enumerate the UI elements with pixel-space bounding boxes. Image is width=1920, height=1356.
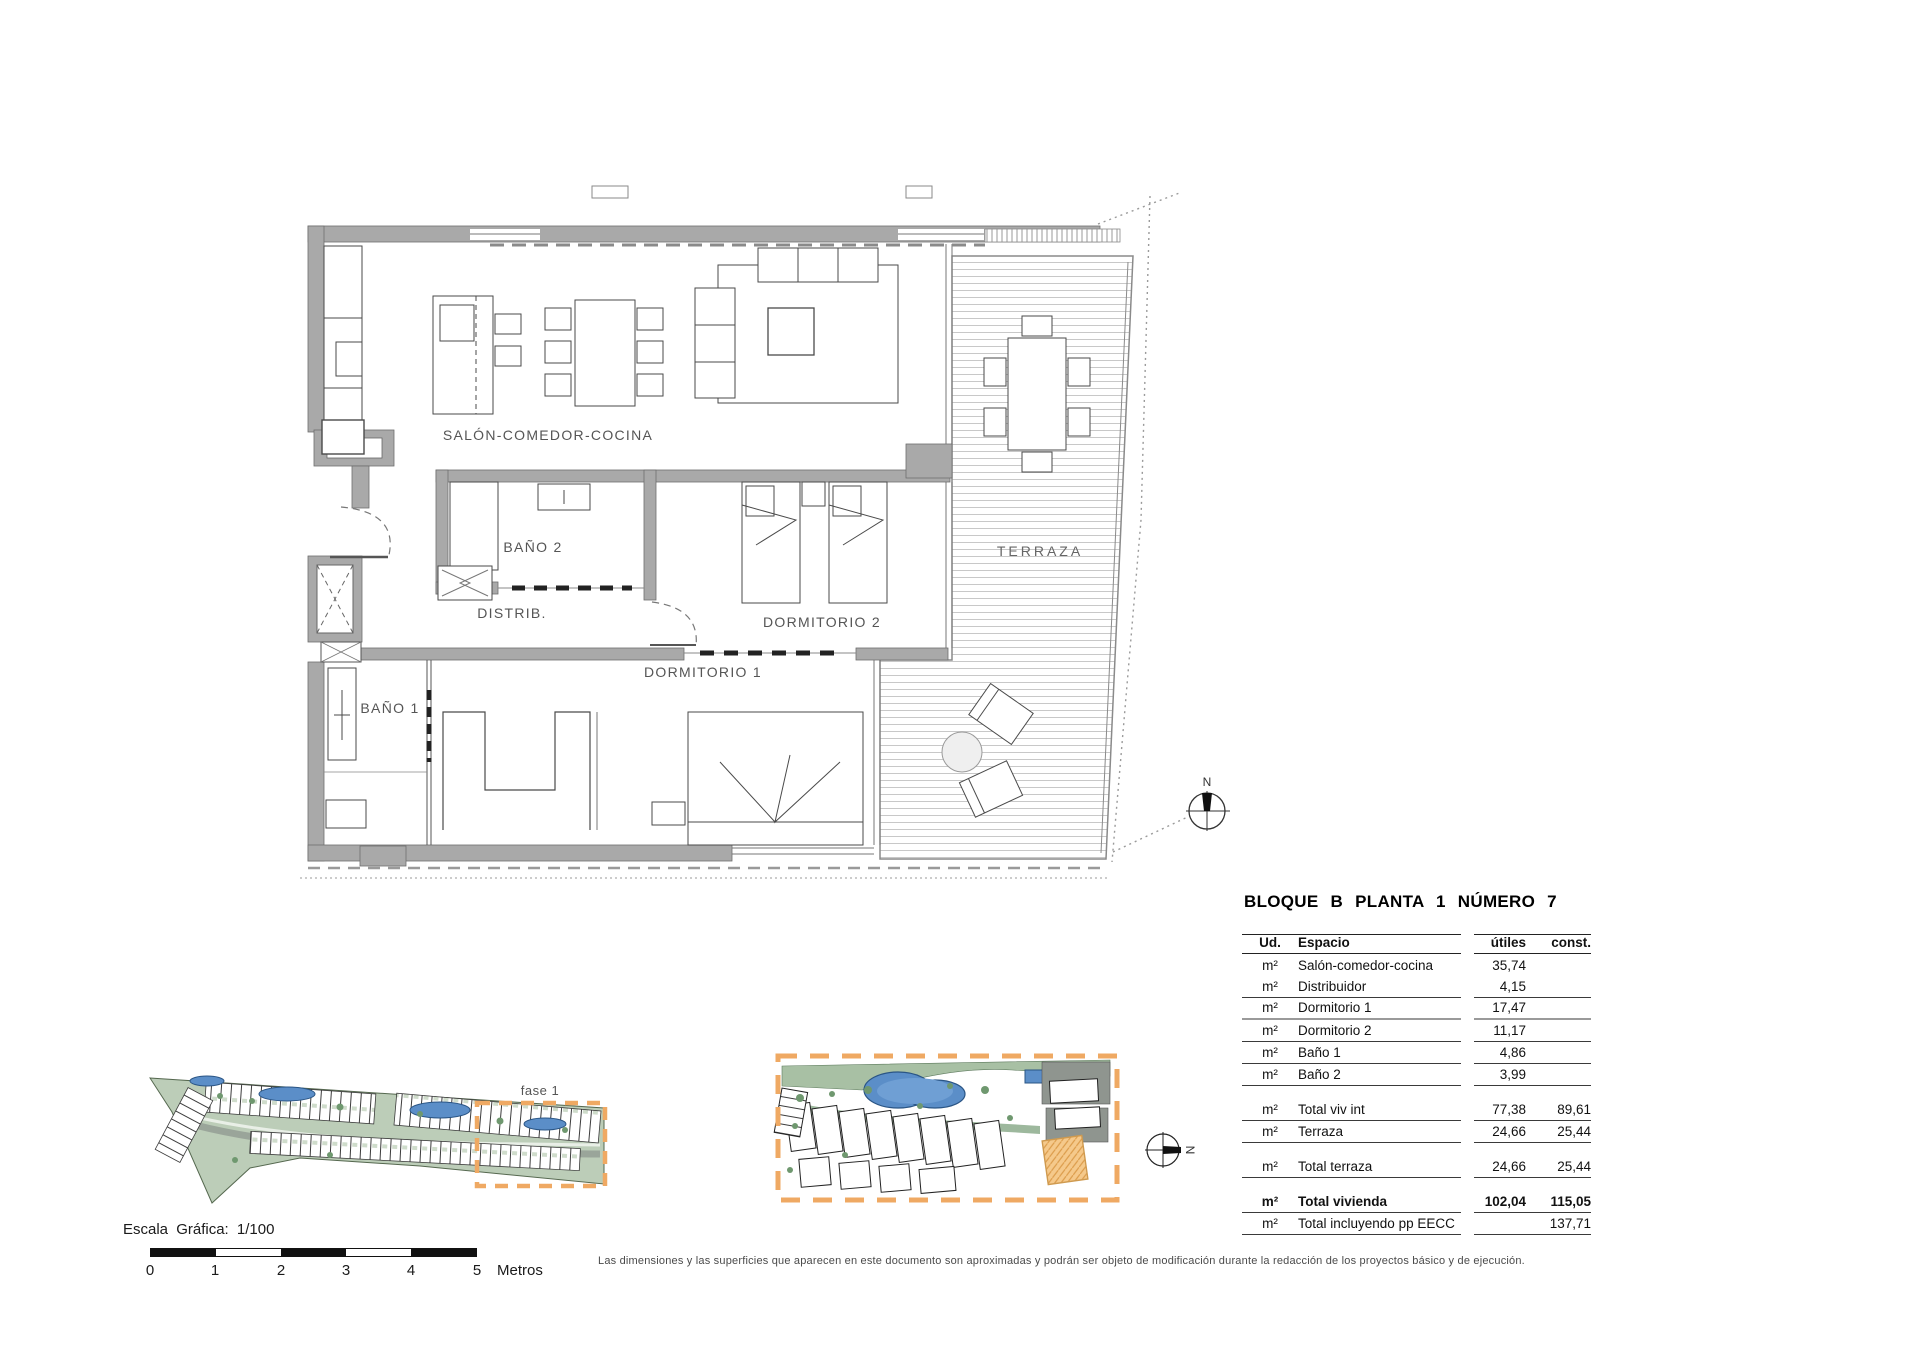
table-title: BLOQUE B PLANTA 1 NÚMERO 7	[1244, 892, 1594, 912]
room-label-dormitorio2: DORMITORIO 2	[763, 614, 881, 630]
room-label-dormitorio1: DORMITORIO 1	[644, 664, 762, 680]
site-compass-icon: N	[1145, 1132, 1197, 1168]
table-row: m²Terraza 24,6625,44	[1242, 1121, 1594, 1143]
bathroom1-fixtures	[324, 668, 427, 828]
drawing-canvas: SALÓN-COMEDOR-COCINA BAÑO 2 DISTRIB. DOR…	[0, 0, 1920, 1356]
site-plan-detail	[774, 1056, 1117, 1200]
kitchen-counters	[322, 246, 364, 454]
table-row: m²Baño 1 4,86	[1242, 1042, 1594, 1064]
fase1-label: fase 1	[521, 1083, 559, 1098]
table-row: m²Salón-comedor-cocina 35,74	[1242, 954, 1594, 976]
scale-unit: Metros	[497, 1262, 543, 1279]
header-utiles: útiles	[1474, 935, 1526, 950]
scale-tick: 5	[473, 1262, 481, 1279]
room-label-bano2: BAÑO 2	[503, 539, 562, 555]
kitchen-island	[433, 296, 521, 414]
room-label-terraza: TERRAZA	[997, 543, 1083, 559]
dining-set	[545, 300, 663, 406]
table-row: m²Dormitorio 1 17,47	[1242, 998, 1594, 1020]
header-espacio: Espacio	[1298, 935, 1461, 950]
scale-tick: 0	[146, 1262, 154, 1279]
plan-sheet: SALÓN-COMEDOR-COCINA BAÑO 2 DISTRIB. DOR…	[0, 0, 1920, 1356]
scale-tick: 2	[277, 1262, 285, 1279]
sofa-set	[695, 248, 898, 403]
dimension-lines	[300, 868, 1110, 878]
table-row: m²Total viv int 77,3889,61	[1242, 1086, 1594, 1121]
scale-tick: 1	[211, 1262, 219, 1279]
site-plan-overview: fase 1	[150, 1076, 605, 1203]
room-label-distrib: DISTRIB.	[477, 605, 547, 621]
table-row: m²Total incluyendo pp EECC 137,71	[1242, 1213, 1594, 1235]
room-label-bano1: BAÑO 1	[360, 700, 419, 716]
table-row: m²Baño 2 3,99	[1242, 1064, 1594, 1086]
table-header-row: Ud. Espacio útiles const.	[1242, 921, 1594, 954]
north-compass-icon: N	[1186, 775, 1230, 831]
scale-tick: 3	[342, 1262, 350, 1279]
table-row: m²Total terraza 24,6625,44	[1242, 1143, 1594, 1178]
north-label: N	[1203, 775, 1212, 789]
site-north-label: N	[1183, 1146, 1197, 1155]
table-row: m²Distribuidor 4,15	[1242, 976, 1594, 998]
scale-tick: 4	[407, 1262, 415, 1279]
scale-label: Escala Gráfica: 1/100	[123, 1221, 274, 1238]
areas-table: BLOQUE B PLANTA 1 NÚMERO 7 Ud. Espacio ú…	[1242, 892, 1594, 1235]
header-ud: Ud.	[1242, 935, 1298, 950]
room-label-salon: SALÓN-COMEDOR-COCINA	[443, 427, 653, 443]
table-row-total: m²Total vivienda 102,04115,05	[1242, 1178, 1594, 1213]
bedroom1-furniture	[652, 712, 863, 845]
header-const: const.	[1526, 935, 1591, 950]
table-row: m²Dormitorio 2 11,17	[1242, 1020, 1594, 1042]
bedroom2-furniture	[742, 482, 887, 603]
highlighted-unit	[1042, 1135, 1088, 1184]
disclaimer-text: Las dimensiones y las superficies que ap…	[598, 1255, 1644, 1267]
closet-unit	[443, 712, 597, 830]
floor-plan: SALÓN-COMEDOR-COCINA BAÑO 2 DISTRIB. DOR…	[300, 186, 1194, 878]
scale-bar	[150, 1248, 477, 1257]
